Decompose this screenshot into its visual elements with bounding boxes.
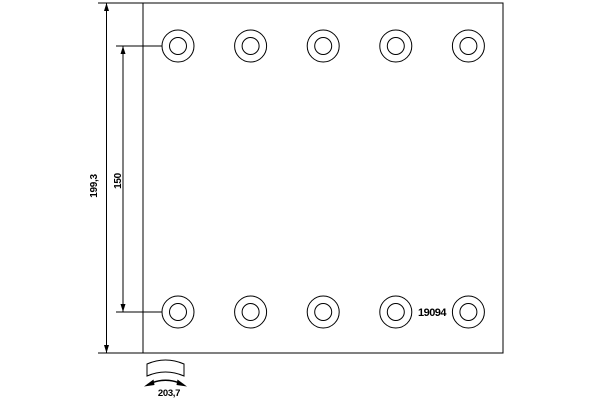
- arc-width-dimension-label: 203,7: [158, 388, 180, 399]
- part-number-label: 19094: [418, 307, 447, 319]
- rivet-spacing-dimension-label: 150: [113, 172, 124, 189]
- drawing-background: [0, 0, 600, 400]
- total-height-dimension-label: 199,3: [89, 174, 100, 198]
- brake-lining-technical-drawing: 199,3 150 19094 203,7: [0, 0, 600, 400]
- drawing-svg: 199,3 150 19094 203,7: [0, 0, 600, 400]
